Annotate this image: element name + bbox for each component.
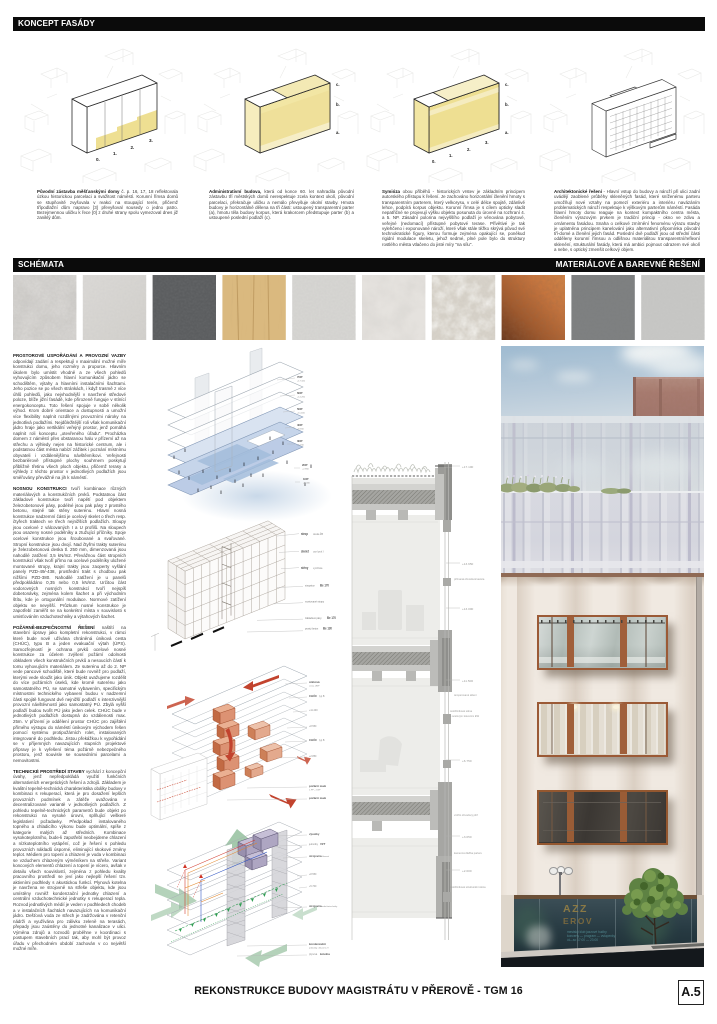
svg-text:skelet: skelet xyxy=(301,549,309,553)
svg-text:+13.650: +13.650 xyxy=(462,562,474,566)
svg-text:+8.550: +8.550 xyxy=(297,428,305,430)
svg-text:1NP: 1NP xyxy=(303,477,309,481)
svg-text:základové pásy: základové pásy xyxy=(305,616,322,620)
svg-text:montované stropy: montované stropy xyxy=(305,600,325,604)
svg-text:Be 170: Be 170 xyxy=(327,616,336,620)
svg-text:typ B: typ B xyxy=(319,739,325,742)
svg-text:vzduchotechniky: vzduchotechniky xyxy=(321,905,338,908)
svg-text:celohliníková stěna: celohliníková stěna xyxy=(450,709,473,713)
svg-text:Be 130: Be 130 xyxy=(323,626,332,630)
svg-text:výustky: výustky xyxy=(309,832,320,836)
svg-text:+8.550: +8.550 xyxy=(309,873,317,876)
svg-text:chlazení: chlazení xyxy=(321,856,330,858)
svg-text:+11.400: +11.400 xyxy=(309,709,318,712)
svg-text:a.: a. xyxy=(336,130,340,135)
svg-text:+2.850: +2.850 xyxy=(309,755,317,758)
svg-text:+11.400: +11.400 xyxy=(297,412,306,414)
svg-text:+3.050: +3.050 xyxy=(462,835,472,839)
svg-text:1.: 1. xyxy=(449,153,453,158)
svg-text:+2.000: +2.000 xyxy=(462,869,472,873)
svg-text:plynová: plynová xyxy=(309,953,318,956)
svg-text:požární úsek: požární úsek xyxy=(309,796,327,800)
svg-text:3.: 3. xyxy=(485,140,489,145)
svg-text:kamenná dlažba parteru: kamenná dlažba parteru xyxy=(454,851,483,855)
svg-text:c.: c. xyxy=(505,82,509,87)
svg-text:stropnice: stropnice xyxy=(305,583,315,587)
svg-text:stěny: stěny xyxy=(301,566,309,570)
svg-text:jednotky chlazení 2×: jednotky chlazení 2× xyxy=(308,946,330,949)
svg-text:vnitřní obvodový pilíř: vnitřní obvodový pilíř xyxy=(454,813,478,817)
svg-text:kotelna: kotelna xyxy=(320,952,330,956)
svg-text:přiznaná obvodová kazeta: přiznaná obvodová kazeta xyxy=(454,577,485,581)
svg-text:kondenzační: kondenzační xyxy=(309,942,326,946)
svg-text:CHÚC: CHÚC xyxy=(309,737,317,742)
svg-text:jednotky: jednotky xyxy=(308,843,319,846)
svg-text:vyzdívka: vyzdívka xyxy=(313,566,323,570)
svg-text:ocel prof. I: ocel prof. I xyxy=(313,549,324,553)
svg-text:úniková: úniková xyxy=(309,680,320,684)
svg-text:+6.750: +6.750 xyxy=(462,759,472,763)
svg-text:+13.000: +13.000 xyxy=(462,607,474,611)
svg-text:typ B: typ B xyxy=(319,695,325,698)
svg-text:+0.000: +0.000 xyxy=(303,482,311,484)
svg-text:+11.500: +11.500 xyxy=(462,679,473,683)
svg-text:+14.250: +14.250 xyxy=(297,396,306,398)
svg-text:deska ŽB: deska ŽB xyxy=(313,531,323,536)
svg-text:b.: b. xyxy=(336,102,340,107)
svg-text:0.: 0. xyxy=(432,159,436,164)
svg-text:6NP: 6NP xyxy=(297,391,303,395)
svg-text:požární úsek: požární úsek xyxy=(309,784,327,788)
svg-text:+5.700: +5.700 xyxy=(297,444,305,446)
svg-text:+8.550: +8.550 xyxy=(309,725,317,728)
svg-text:5NP: 5NP xyxy=(297,407,303,411)
svg-text:1.: 1. xyxy=(113,151,117,156)
svg-text:+5.700: +5.700 xyxy=(309,885,317,888)
svg-text:2.: 2. xyxy=(467,147,471,152)
svg-text:strop: strop xyxy=(301,532,308,536)
svg-text:3.: 3. xyxy=(149,138,153,143)
svg-text:c.: c. xyxy=(336,82,340,87)
svg-text:a.: a. xyxy=(505,130,509,135)
svg-text:Be 170: Be 170 xyxy=(320,583,329,587)
svg-text:s ocelovým kotvením EW: s ocelovým kotvením EW xyxy=(450,714,480,718)
svg-text:+2.850: +2.850 xyxy=(302,468,310,470)
svg-text:b.: b. xyxy=(505,102,509,107)
svg-text:+17.100: +17.100 xyxy=(462,465,474,469)
svg-text:1.PP - 2.NP: 1.PP - 2.NP xyxy=(309,789,321,791)
svg-text:VZT: VZT xyxy=(320,842,326,846)
svg-text:celohliníková strukturální stě: celohliníková strukturální stěna xyxy=(450,885,486,889)
svg-text:prostý beton: prostý beton xyxy=(305,626,319,630)
svg-text:CHÚC: CHÚC xyxy=(309,693,317,698)
svg-text:cesta UNP: cesta UNP xyxy=(309,684,320,687)
svg-text:0.: 0. xyxy=(96,157,100,162)
svg-text:4NP: 4NP xyxy=(297,423,303,427)
svg-text:7NP: 7NP xyxy=(297,375,303,379)
svg-text:2.: 2. xyxy=(131,145,135,150)
svg-text:3NP: 3NP xyxy=(297,439,303,443)
svg-text:temperované sklení: temperované sklení xyxy=(454,693,477,697)
svg-text:2NP: 2NP xyxy=(302,463,308,467)
svg-text:+17.100: +17.100 xyxy=(297,380,306,382)
